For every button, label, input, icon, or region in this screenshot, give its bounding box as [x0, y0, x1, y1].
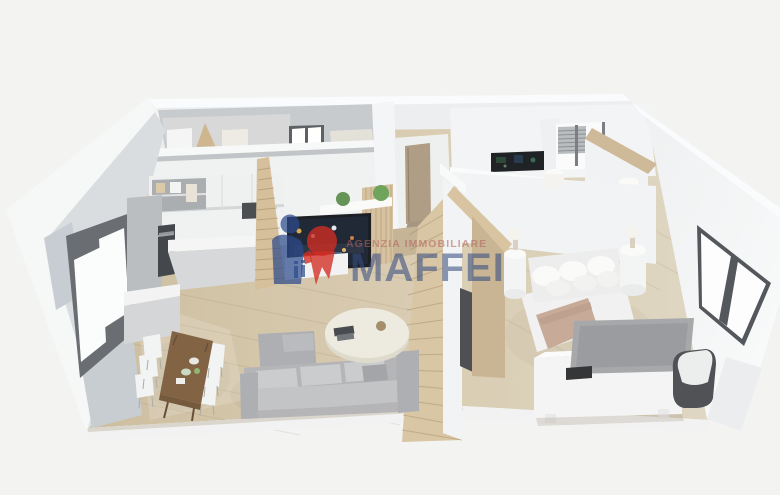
svg-text:MAFFEI: MAFFEI	[350, 246, 505, 290]
